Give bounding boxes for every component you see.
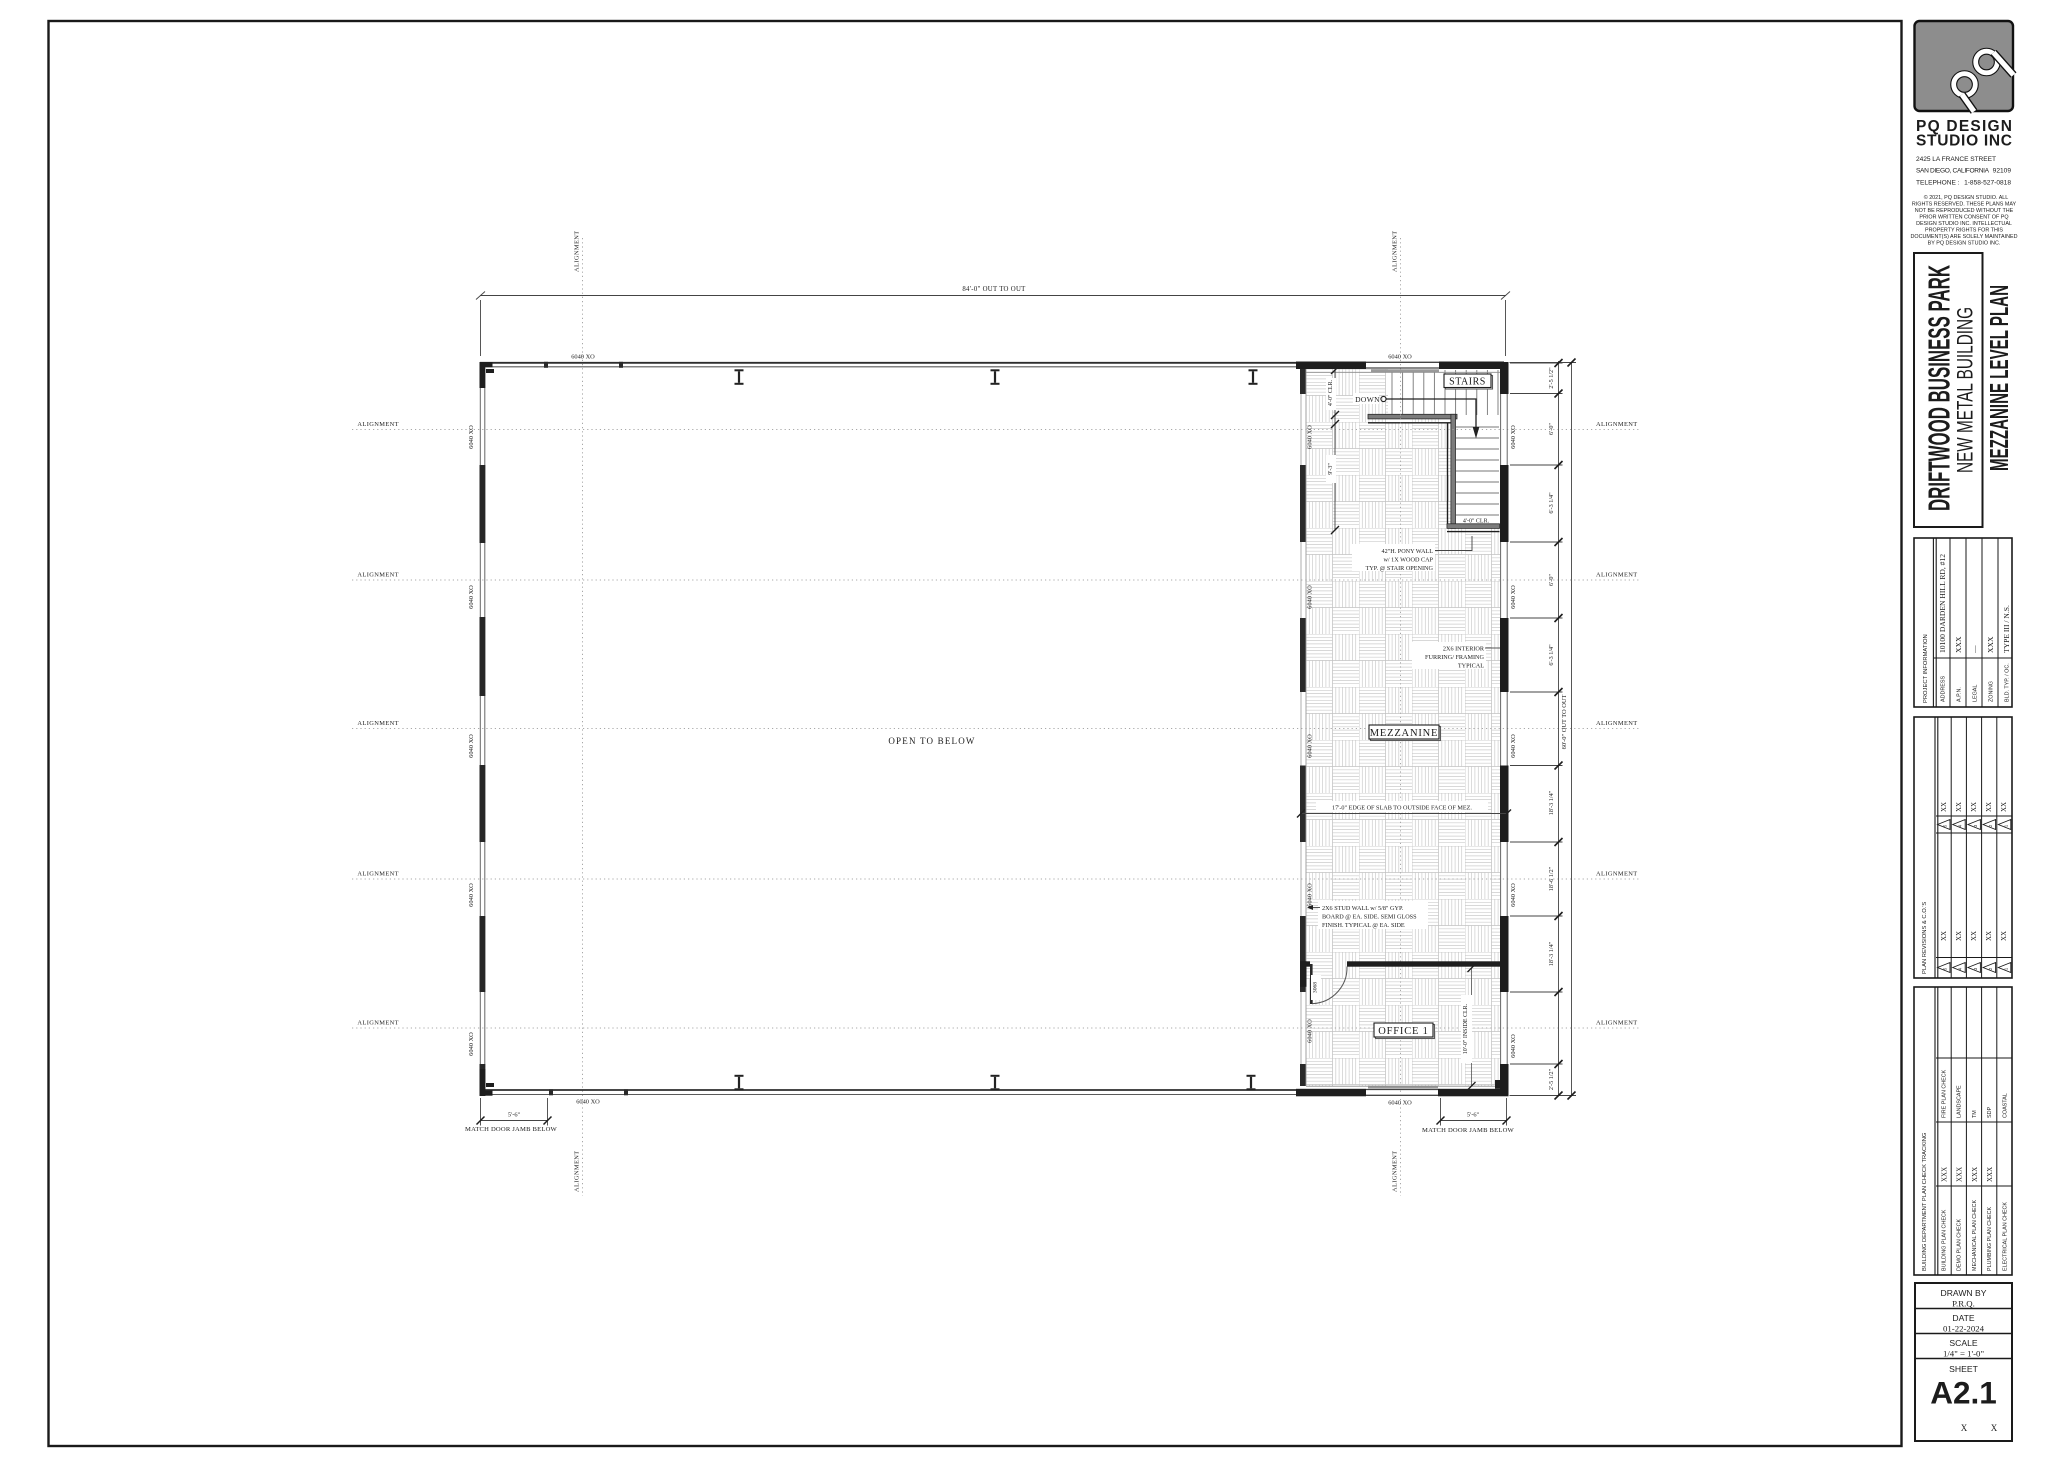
svg-text:COASTAL: COASTAL — [2002, 1093, 2008, 1118]
svg-text:6040 XO: 6040 XO — [571, 354, 595, 361]
svg-text:1/4" = 1'-0": 1/4" = 1'-0" — [1943, 1349, 1985, 1359]
svg-text:XX: XX — [1985, 931, 1993, 941]
svg-text:6040 XO: 6040 XO — [1510, 425, 1517, 449]
svg-text:XX: XX — [1970, 802, 1978, 812]
svg-text:DEMO PLAN CHECK: DEMO PLAN CHECK — [1957, 1218, 1963, 1271]
svg-text:ALIGNMENT: ALIGNMENT — [1596, 1020, 1638, 1027]
svg-text:4'-0" CLR.: 4'-0" CLR. — [1328, 379, 1334, 406]
svg-text:6040 XO: 6040 XO — [468, 585, 475, 609]
svg-text:PRIOR WRITTEN CONSENT OF PQ: PRIOR WRITTEN CONSENT OF PQ — [1919, 215, 2008, 221]
svg-text:ADDRESS: ADDRESS — [1941, 676, 1947, 702]
svg-text:10'-0" INSIDE CLR.: 10'-0" INSIDE CLR. — [1463, 1003, 1469, 1054]
svg-text:92109: 92109 — [1993, 168, 2012, 175]
svg-text:MATCH DOOR JAMB BELOW: MATCH DOOR JAMB BELOW — [1422, 1127, 1515, 1134]
svg-text:5'-6": 5'-6" — [508, 1112, 521, 1119]
svg-text:6040 XO: 6040 XO — [1307, 1019, 1314, 1043]
svg-text:17'-0" EDGE OF SLAB TO OUTSIDE: 17'-0" EDGE OF SLAB TO OUTSIDE FACE OF M… — [1332, 805, 1472, 812]
svg-text:18'-3 1/4": 18'-3 1/4" — [1548, 941, 1555, 966]
svg-text:BOARD @ EA. SIDE. SEMI GLOSS: BOARD @ EA. SIDE. SEMI GLOSS — [1322, 914, 1417, 921]
svg-text:OPEN TO BELOW: OPEN TO BELOW — [888, 736, 975, 746]
svg-text:DOCUMENT(S) ARE SOLELY MAINTAI: DOCUMENT(S) ARE SOLELY MAINTAINED — [1911, 234, 2018, 240]
svg-text:6040 XO: 6040 XO — [1307, 425, 1314, 449]
svg-text:6040 XO: 6040 XO — [1510, 585, 1517, 609]
svg-text:ALIGNMENT: ALIGNMENT — [574, 1150, 581, 1192]
svg-text:XXX: XXX — [1986, 1167, 1994, 1182]
svg-text:SAN DIEGO, CALIFORNIA: SAN DIEGO, CALIFORNIA — [1916, 168, 1990, 175]
svg-text:ELECTRICAL PLAN CHECK: ELECTRICAL PLAN CHECK — [2002, 1202, 2008, 1271]
svg-text:TELEPHONE :: TELEPHONE : — [1916, 180, 1960, 187]
svg-text:P.R.Q.: P.R.Q. — [1952, 1299, 1975, 1309]
svg-text:MECHANICAL PLAN CHECK: MECHANICAL PLAN CHECK — [1972, 1200, 1978, 1271]
svg-text:NOT BE REPRODUCED WITHOUT THE: NOT BE REPRODUCED WITHOUT THE — [1915, 208, 2014, 214]
svg-text:2'-5 1/2": 2'-5 1/2" — [1548, 367, 1555, 389]
svg-text:BUILDING PLAN CHECK: BUILDING PLAN CHECK — [1942, 1209, 1948, 1271]
svg-text:TYP. @ STAIR OPENING: TYP. @ STAIR OPENING — [1366, 565, 1434, 572]
svg-text:1-858-527-0818: 1-858-527-0818 — [1964, 180, 2011, 187]
svg-text:STAIRS: STAIRS — [1449, 377, 1486, 388]
svg-text:DRIFTWOOD BUSINESS PARK: DRIFTWOOD BUSINESS PARK — [1922, 265, 1957, 511]
svg-text:XXX: XXX — [1954, 636, 1963, 653]
svg-text:XX: XX — [1955, 802, 1963, 812]
svg-text:3068: 3068 — [1313, 982, 1319, 993]
svg-text:4'-0" CLR.: 4'-0" CLR. — [1463, 519, 1490, 525]
svg-text:2X6 INTERIOR: 2X6 INTERIOR — [1443, 646, 1485, 653]
svg-text:2'-5 1/2": 2'-5 1/2" — [1548, 1068, 1555, 1090]
svg-text:ALIGNMENT: ALIGNMENT — [1392, 230, 1399, 272]
svg-text:6040 XO: 6040 XO — [1307, 734, 1314, 758]
svg-text:5'-6": 5'-6" — [1467, 1112, 1480, 1119]
svg-text:DOWN: DOWN — [1355, 395, 1380, 404]
svg-text:ALIGNMENT: ALIGNMENT — [357, 572, 399, 579]
svg-text:LANDSCAPE: LANDSCAPE — [1957, 1085, 1963, 1118]
svg-text:ALIGNMENT: ALIGNMENT — [1596, 720, 1638, 727]
svg-text:6040 XO: 6040 XO — [1388, 354, 1412, 361]
svg-text:DESIGN STUDIO INC. INTELLECTUA: DESIGN STUDIO INC. INTELLECTUAL — [1916, 221, 2012, 227]
svg-text:XX: XX — [1940, 802, 1948, 812]
svg-text:DATE: DATE — [1952, 1313, 1975, 1323]
svg-text:LEGAL: LEGAL — [1973, 685, 1979, 702]
svg-text:TYPE III / N.S.: TYPE III / N.S. — [2002, 605, 2011, 653]
svg-text:6040 XO: 6040 XO — [468, 1032, 475, 1056]
svg-text:TM: TM — [1972, 1110, 1978, 1118]
svg-text:FURRING/ FRAMING: FURRING/ FRAMING — [1425, 654, 1484, 661]
svg-text:6040 XO: 6040 XO — [1388, 1100, 1412, 1107]
svg-text:FIRE PLAN CHECK: FIRE PLAN CHECK — [1942, 1069, 1948, 1118]
svg-text:6'-3 1/4": 6'-3 1/4" — [1548, 644, 1555, 666]
svg-text:© 2021, PQ DESIGN STUDIO. ALL: © 2021, PQ DESIGN STUDIO. ALL — [1924, 194, 2009, 201]
svg-text:MATCH DOOR JAMB BELOW: MATCH DOOR JAMB BELOW — [465, 1126, 558, 1133]
svg-text:ALIGNMENT: ALIGNMENT — [357, 421, 399, 428]
svg-text:NEW METAL BUILDING: NEW METAL BUILDING — [1953, 307, 1978, 473]
svg-text:XX: XX — [1940, 931, 1948, 941]
svg-text:XXX: XXX — [1971, 1167, 1979, 1182]
svg-text:18'-3 1/4": 18'-3 1/4" — [1548, 790, 1555, 815]
svg-text:18'-6 1/2": 18'-6 1/2" — [1548, 866, 1555, 891]
svg-text:6'-0": 6'-0" — [1548, 423, 1555, 435]
svg-text:2425 LA FRANCE STREET: 2425 LA FRANCE STREET — [1916, 156, 1996, 163]
svg-text:6'-0": 6'-0" — [1548, 574, 1555, 586]
svg-text:MEZZANINE LEVEL PLAN: MEZZANINE LEVEL PLAN — [1984, 285, 2014, 471]
svg-text:BLD. TYP. / OC.: BLD. TYP. / OC. — [2005, 663, 2011, 702]
svg-text:RIGHTS RESERVED. THESE PLANS M: RIGHTS RESERVED. THESE PLANS MAY — [1912, 202, 2017, 208]
svg-text:A.P.N.: A.P.N. — [1957, 687, 1963, 702]
svg-text:XX: XX — [1955, 931, 1963, 941]
svg-text:6040 XO: 6040 XO — [1510, 734, 1517, 758]
svg-text:XX: XX — [1970, 931, 1978, 941]
svg-text:9'-3": 9'-3" — [1328, 463, 1334, 475]
svg-text:6040 XO: 6040 XO — [1510, 1034, 1517, 1058]
svg-text:TYPICAL: TYPICAL — [1458, 663, 1484, 670]
svg-text:DRAWN BY: DRAWN BY — [1941, 1288, 1987, 1298]
svg-text:84'-0" OUT TO OUT: 84'-0" OUT TO OUT — [962, 286, 1026, 293]
svg-text:60'-0" OUT TO OUT: 60'-0" OUT TO OUT — [1561, 695, 1568, 750]
svg-text:PLUMBING PLAN CHECK: PLUMBING PLAN CHECK — [1987, 1206, 1993, 1271]
svg-text:01-22-2024: 01-22-2024 — [1943, 1324, 1985, 1334]
svg-text:XX: XX — [1985, 802, 1993, 812]
svg-text:w/ 1X WOOD CAP: w/ 1X WOOD CAP — [1383, 557, 1433, 564]
svg-text:SDP: SDP — [1987, 1107, 1993, 1118]
svg-text:PROPERTY RIGHTS FOR THIS: PROPERTY RIGHTS FOR THIS — [1925, 228, 2003, 234]
svg-text:XXX: XXX — [1986, 636, 1995, 653]
svg-text:ALIGNMENT: ALIGNMENT — [1596, 572, 1638, 579]
svg-text:ZONING: ZONING — [1989, 681, 1995, 702]
svg-text:FINISH. TYPICAL @ EA. SIDE: FINISH. TYPICAL @ EA. SIDE — [1322, 922, 1405, 929]
svg-text:BY PQ DESIGN STUDIO INC.: BY PQ DESIGN STUDIO INC. — [1928, 241, 2001, 247]
svg-text:6'-3 1/4": 6'-3 1/4" — [1548, 492, 1555, 514]
svg-text:OFFICE 1: OFFICE 1 — [1378, 1026, 1428, 1037]
svg-text:—: — — [1970, 645, 1979, 654]
svg-text:PLAN REVISIONS & C.O.'S: PLAN REVISIONS & C.O.'S — [1922, 902, 1928, 974]
svg-text:XX: XX — [2000, 931, 2008, 941]
svg-text:MEZZANINE: MEZZANINE — [1370, 728, 1438, 739]
svg-text:6040 XO: 6040 XO — [576, 1099, 600, 1106]
svg-text:ALIGNMENT: ALIGNMENT — [1596, 421, 1638, 428]
svg-text:X: X — [1991, 1423, 1998, 1433]
svg-text:ALIGNMENT: ALIGNMENT — [574, 230, 581, 272]
svg-text:ALIGNMENT: ALIGNMENT — [357, 871, 399, 878]
svg-text:ALIGNMENT: ALIGNMENT — [1392, 1150, 1399, 1192]
svg-text:SHEET: SHEET — [1949, 1364, 1978, 1374]
svg-text:STUDIO INC: STUDIO INC — [1916, 133, 2012, 150]
svg-text:BUILDING DEPARTMENT PLAN CHECK: BUILDING DEPARTMENT PLAN CHECK TRACKING — [1922, 1132, 1928, 1271]
svg-text:6040 XO: 6040 XO — [468, 425, 475, 449]
svg-text:X: X — [1961, 1423, 1968, 1433]
svg-text:10100 DARDEN HILL RD, #12: 10100 DARDEN HILL RD, #12 — [1938, 554, 1947, 653]
svg-text:6040 XO: 6040 XO — [1307, 883, 1314, 907]
svg-text:XX: XX — [2000, 802, 2008, 812]
svg-text:6040 XO: 6040 XO — [468, 883, 475, 907]
svg-text:6040 XO: 6040 XO — [1307, 585, 1314, 609]
svg-text:A2.1: A2.1 — [1930, 1375, 1997, 1411]
svg-text:ALIGNMENT: ALIGNMENT — [357, 1020, 399, 1027]
svg-text:XXX: XXX — [1941, 1167, 1949, 1182]
svg-text:PROJECT INFORMATION: PROJECT INFORMATION — [1923, 634, 1929, 703]
svg-text:42"H. PONY WALL: 42"H. PONY WALL — [1381, 548, 1433, 555]
svg-text:2X6 STUD WALL w/ 5/8" GYP.: 2X6 STUD WALL w/ 5/8" GYP. — [1322, 905, 1404, 912]
svg-text:6040 XO: 6040 XO — [468, 734, 475, 758]
svg-text:SCALE: SCALE — [1949, 1338, 1977, 1348]
svg-text:ALIGNMENT: ALIGNMENT — [357, 720, 399, 727]
svg-text:ALIGNMENT: ALIGNMENT — [1596, 871, 1638, 878]
svg-text:XXX: XXX — [1956, 1167, 1964, 1182]
svg-text:6040 XO: 6040 XO — [1510, 883, 1517, 907]
